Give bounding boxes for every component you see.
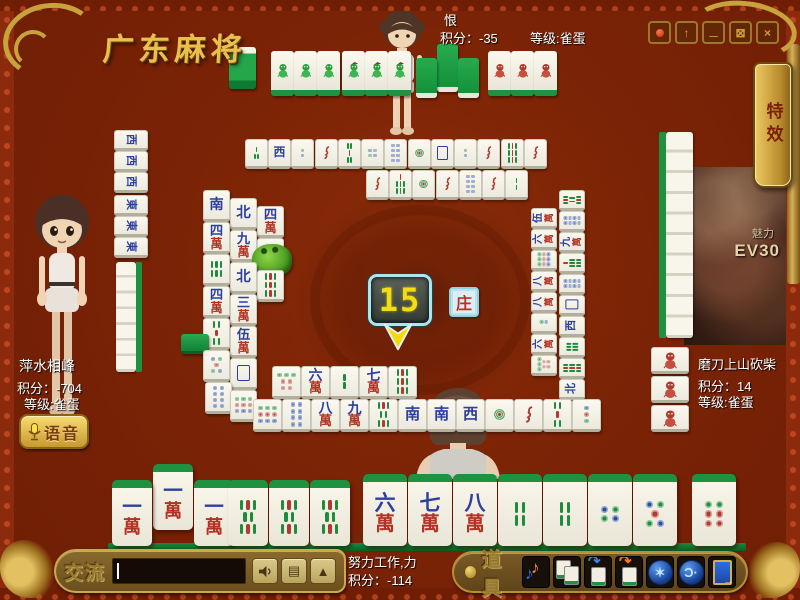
tile-c8 [559, 211, 585, 232]
window-controls: ↑─⊠× [648, 21, 779, 44]
tile-sg [317, 51, 340, 96]
tile-c1 [485, 399, 514, 432]
chat-speaker-button[interactable] [252, 558, 278, 584]
hand-tile-c4[interactable] [588, 474, 632, 546]
prop-music-icon[interactable]: ♪♪ [522, 556, 550, 588]
tile-w4: 四萬 [257, 206, 284, 238]
left-player-hand-stack [116, 262, 136, 372]
tile-white [230, 358, 257, 390]
prop-exit-icon[interactable]: → [708, 556, 736, 588]
tile-w9: 九萬 [340, 399, 369, 432]
hand-tile-w7[interactable]: 七萬 [408, 474, 452, 546]
effects-tab[interactable]: 特效 [753, 62, 793, 188]
tile-c5 [203, 350, 230, 382]
turn-timer: 15 [368, 274, 432, 326]
top-player-name: 恨 [444, 10, 457, 29]
tile-west: 西 [114, 151, 148, 172]
hand-tile-c5[interactable] [633, 474, 677, 546]
ev-code: EV30 [734, 241, 780, 261]
tile-b6 [203, 254, 230, 286]
hand-tile-b4[interactable] [498, 474, 542, 546]
ev-promo-panel: 魅力 EV30 [684, 167, 788, 345]
effects-tab-label: 特效 [761, 102, 786, 148]
tile-w8: 八萬 [531, 292, 557, 313]
tile-south: 南 [427, 399, 456, 432]
dealer-marker: 庄 [449, 287, 479, 317]
tile-c7 [531, 355, 557, 376]
corner-mask-icon [0, 540, 56, 598]
tile-west: 西 [559, 316, 585, 337]
tile-north: 北 [230, 262, 257, 294]
tile-c8 [205, 382, 232, 414]
tile-white [431, 139, 454, 169]
tile-w4: 四萬 [203, 286, 230, 318]
tile-b1 [524, 139, 547, 169]
tile-c8 [459, 170, 482, 200]
tile-b1 [514, 399, 543, 432]
tile-b8 [369, 399, 398, 432]
tile-w1: 一萬 [112, 480, 152, 546]
right-player-hand-stack [666, 132, 693, 338]
tile-sh [342, 51, 365, 96]
tile-sg [294, 51, 317, 96]
tile-b5 [338, 139, 361, 169]
right-player-name: 磨刀上山砍柴 [698, 354, 776, 373]
tile-back [437, 44, 458, 92]
chat-bar: 交流 ▤▲ [54, 549, 346, 593]
tile-back [416, 58, 437, 98]
tile-sh [365, 51, 388, 96]
tile-north: 北 [230, 198, 257, 230]
bottom-player-score: 积分：-114 [348, 570, 412, 589]
tile-b1 [315, 139, 338, 169]
voice-button[interactable]: 语音 [19, 414, 89, 449]
chat-input[interactable] [112, 558, 246, 584]
tile-b2 [505, 170, 528, 200]
tile-b6 [559, 337, 585, 358]
chat-buttons: ▤▲ [252, 558, 336, 584]
minimize-button[interactable]: ─ [702, 21, 725, 44]
tile-w8: 八萬 [311, 399, 340, 432]
tile-back [458, 58, 479, 98]
tile-c1 [408, 139, 431, 169]
top-player-level: 等级:雀蛋 [530, 28, 586, 47]
tile-b9 [501, 139, 524, 169]
tile-sr [511, 51, 534, 96]
tile-east: 東 [114, 216, 148, 237]
hand-tile-c6[interactable] [692, 474, 736, 546]
tile-south: 南 [398, 399, 427, 432]
chat-input-wrap [112, 558, 246, 584]
ev-caption: 魅力 [752, 225, 774, 241]
bottom-player-name: 努力工作,力 [348, 552, 417, 571]
hand-tile-w8[interactable]: 八萬 [453, 474, 497, 546]
tile-w6: 六萬 [531, 334, 557, 355]
tile-w6: 六萬 [301, 366, 330, 399]
tile-c8 [384, 139, 407, 169]
tile-sr [534, 51, 557, 96]
tile-sr [651, 405, 689, 432]
tile-b1 [477, 139, 500, 169]
tile-b8 [310, 480, 350, 546]
game-title: 广东麻将 [101, 24, 248, 69]
tile-sh [388, 51, 411, 96]
border-left [0, 11, 14, 588]
left-player-name: 萍水相峰 [19, 356, 75, 376]
tile-sr [651, 347, 689, 374]
close-button[interactable]: × [756, 21, 779, 44]
props-button[interactable]: 道具 [464, 543, 513, 600]
tile-w3: 三萬 [230, 294, 257, 326]
tile-c9 [531, 250, 557, 271]
tile-sr [651, 376, 689, 403]
tile-sr [488, 51, 511, 96]
tile-c7 [272, 366, 301, 399]
tile-north: 北 [559, 379, 585, 400]
tile-w7: 七萬 [359, 366, 388, 399]
chat-caret [117, 563, 119, 579]
tile-b1 [366, 170, 389, 200]
prop-skill-icon[interactable]: ✶ [646, 556, 674, 588]
tile-w9: 九萬 [559, 232, 585, 253]
tile-b8 [228, 480, 268, 546]
chat-label: 交流 [64, 558, 106, 585]
tile-c2 [454, 139, 477, 169]
tile-c1 [412, 170, 435, 200]
hand-tile-b4[interactable] [543, 474, 587, 546]
border-top [0, 0, 800, 11]
microphone-icon [28, 423, 41, 441]
tile-b1 [482, 170, 505, 200]
tile-b8 [269, 480, 309, 546]
prop-tiles-icon[interactable] [553, 556, 581, 588]
tile-west: 西 [114, 172, 148, 193]
tile-c8 [282, 399, 311, 432]
game-window: 广东麻将 ↑─⊠× 特效 恨 积分：-35 等级:雀蛋 萍水相峰 积分：-704… [0, 0, 800, 600]
upload-button[interactable]: ↑ [675, 21, 698, 44]
turn-arrow-icon [383, 323, 413, 351]
tile-c4 [361, 139, 384, 169]
tile-west: 西 [114, 130, 148, 151]
tile-c8 [559, 274, 585, 295]
tile-w5: 伍萬 [531, 208, 557, 229]
prop-swap-orange-icon[interactable]: ↷ [615, 556, 643, 588]
prop-icons: ♪♪↷↷✶Ɔ·→ [522, 556, 736, 588]
props-bar: 道具 ♪♪↷↷✶Ɔ·→ [452, 551, 748, 593]
corner-ornament-icon [14, 30, 52, 68]
tile-c2 [531, 313, 557, 334]
tile-w4: 四萬 [203, 222, 230, 254]
tile-east: 東 [114, 237, 148, 258]
maximize-button[interactable]: ⊠ [729, 21, 752, 44]
dealer-marker-label: 庄 [456, 290, 472, 314]
tile-white [559, 295, 585, 316]
prop-listen-icon[interactable]: Ɔ· [677, 556, 705, 588]
voice-button-label: 语音 [44, 420, 80, 444]
tile-w1: 一萬 [153, 464, 193, 530]
tile-west: 西 [456, 399, 485, 432]
left-player-level: 等级:雀蛋 [24, 394, 80, 413]
right-player-level: 等级:雀蛋 [698, 392, 754, 411]
chat-memo-button[interactable]: ▤ [281, 558, 307, 584]
hand-tile-w6[interactable]: 六萬 [363, 474, 407, 546]
coin-icon [464, 565, 477, 579]
tile-b1 [436, 170, 459, 200]
tile-b9 [257, 270, 284, 302]
top-player-score: 积分：-35 [440, 28, 498, 47]
chat-collapse-button[interactable]: ▲ [310, 558, 336, 584]
record-button[interactable] [648, 21, 671, 44]
tile-w8: 八萬 [531, 271, 557, 292]
props-button-label: 道具 [481, 543, 513, 600]
tile-c9 [253, 399, 282, 432]
tile-east: 東 [114, 195, 148, 216]
tile-b7 [559, 253, 585, 274]
tile-b5 [543, 399, 572, 432]
tile-sg [271, 51, 294, 96]
tile-south: 南 [203, 190, 230, 222]
tile-b8 [559, 190, 585, 211]
tile-b3 [245, 139, 268, 169]
tile-west: 西 [268, 139, 291, 169]
tile-b2 [330, 366, 359, 399]
tile-w6: 六萬 [531, 229, 557, 250]
tile-c2 [291, 139, 314, 169]
prop-swap-blue-icon[interactable]: ↷ [584, 556, 612, 588]
tile-b7 [389, 170, 412, 200]
tile-b9 [559, 358, 585, 379]
tile-c3 [572, 399, 601, 432]
turn-timer-value: 15 [379, 281, 422, 319]
tile-w5: 伍萬 [230, 326, 257, 358]
